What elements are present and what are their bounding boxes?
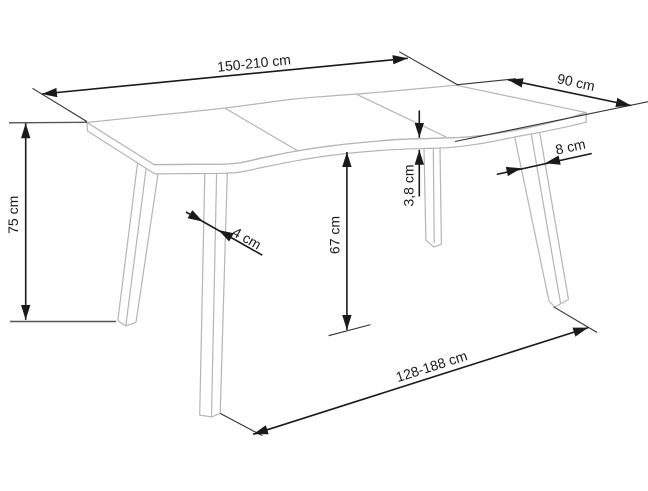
svg-text:3,8 cm: 3,8 cm — [401, 164, 417, 206]
svg-text:67 cm: 67 cm — [327, 216, 343, 254]
svg-text:75 cm: 75 cm — [5, 196, 21, 234]
